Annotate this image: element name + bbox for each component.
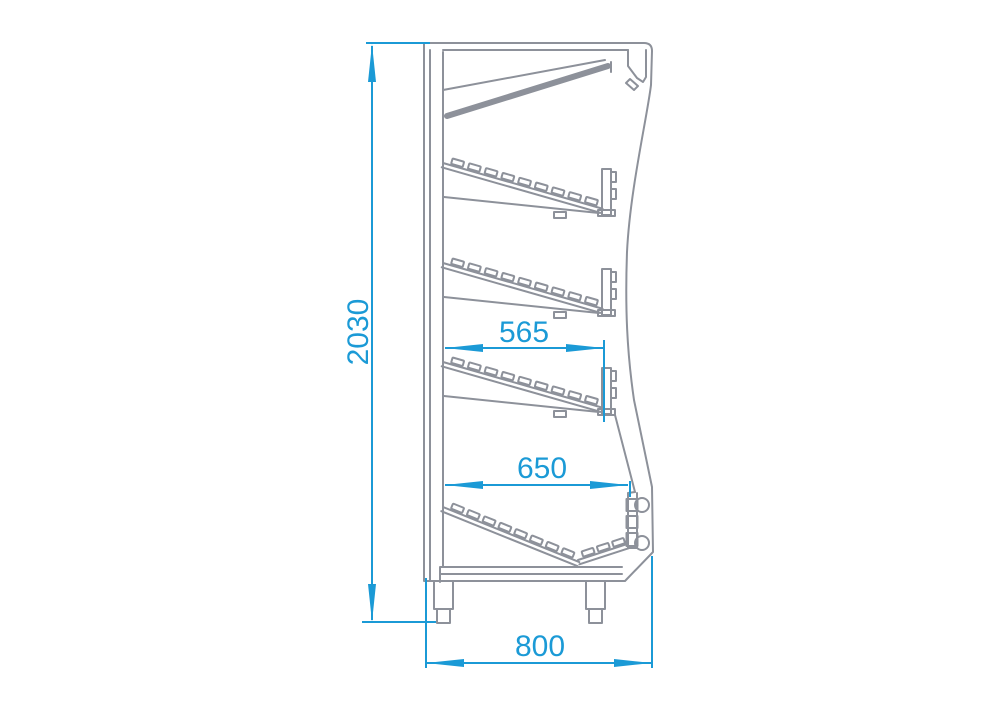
- price-rail-tab-top: [611, 172, 616, 182]
- shelf-2: [442, 256, 616, 318]
- base-well: [440, 501, 629, 582]
- cabinet-technical-drawing: 2030 565 650 800: [0, 0, 1000, 714]
- arrowhead-left-icon: [445, 344, 483, 352]
- light-fixture-clip: [626, 79, 638, 90]
- arrowhead-left-icon: [426, 659, 464, 667]
- side-panel-outline: [424, 43, 653, 581]
- price-rail-tab-mid: [611, 189, 616, 199]
- dimension-label-overall-depth: 800: [515, 630, 565, 663]
- arrowhead-right-icon: [566, 344, 604, 352]
- arrowhead-left-icon: [445, 481, 483, 489]
- arrowhead-right-icon: [614, 659, 652, 667]
- dimension-label-shelf-depth: 565: [499, 316, 549, 349]
- front-lower-assembly: [615, 415, 649, 550]
- leg-left: [434, 581, 453, 609]
- base-ramp-surface: [578, 544, 629, 564]
- base-ramp-surface: [441, 507, 579, 566]
- shelf-underside-hook: [554, 212, 566, 218]
- drawing-canvas: 2030 565 650 800: [0, 0, 1000, 714]
- leg-left-foot: [437, 609, 450, 623]
- base-well-front-ramp: [576, 537, 629, 564]
- shelf-1: [442, 156, 616, 218]
- leg-right: [586, 581, 605, 609]
- legs: [434, 581, 605, 623]
- dimension-base-shelf-depth: 650: [445, 452, 630, 497]
- dimension-label-base-shelf-depth: 650: [517, 452, 567, 485]
- front-panel-diagonal: [615, 415, 635, 492]
- base-well-rear-ramp: [441, 501, 582, 567]
- canopy: [443, 50, 646, 116]
- light-fixture-housing: [628, 50, 646, 82]
- arrowhead-right-icon: [590, 481, 628, 489]
- dimension-overall-height: 2030: [342, 43, 436, 622]
- dimension-label-overall-height: 2030: [342, 299, 375, 366]
- dimension-overall-depth: 800: [426, 556, 652, 668]
- leg-right-foot: [589, 609, 602, 623]
- base-plinth: [440, 567, 622, 582]
- arrowhead-down-icon: [368, 584, 376, 622]
- price-rail: [602, 169, 611, 215]
- arrowhead-up-icon: [368, 44, 376, 82]
- shelf-3: [442, 355, 616, 417]
